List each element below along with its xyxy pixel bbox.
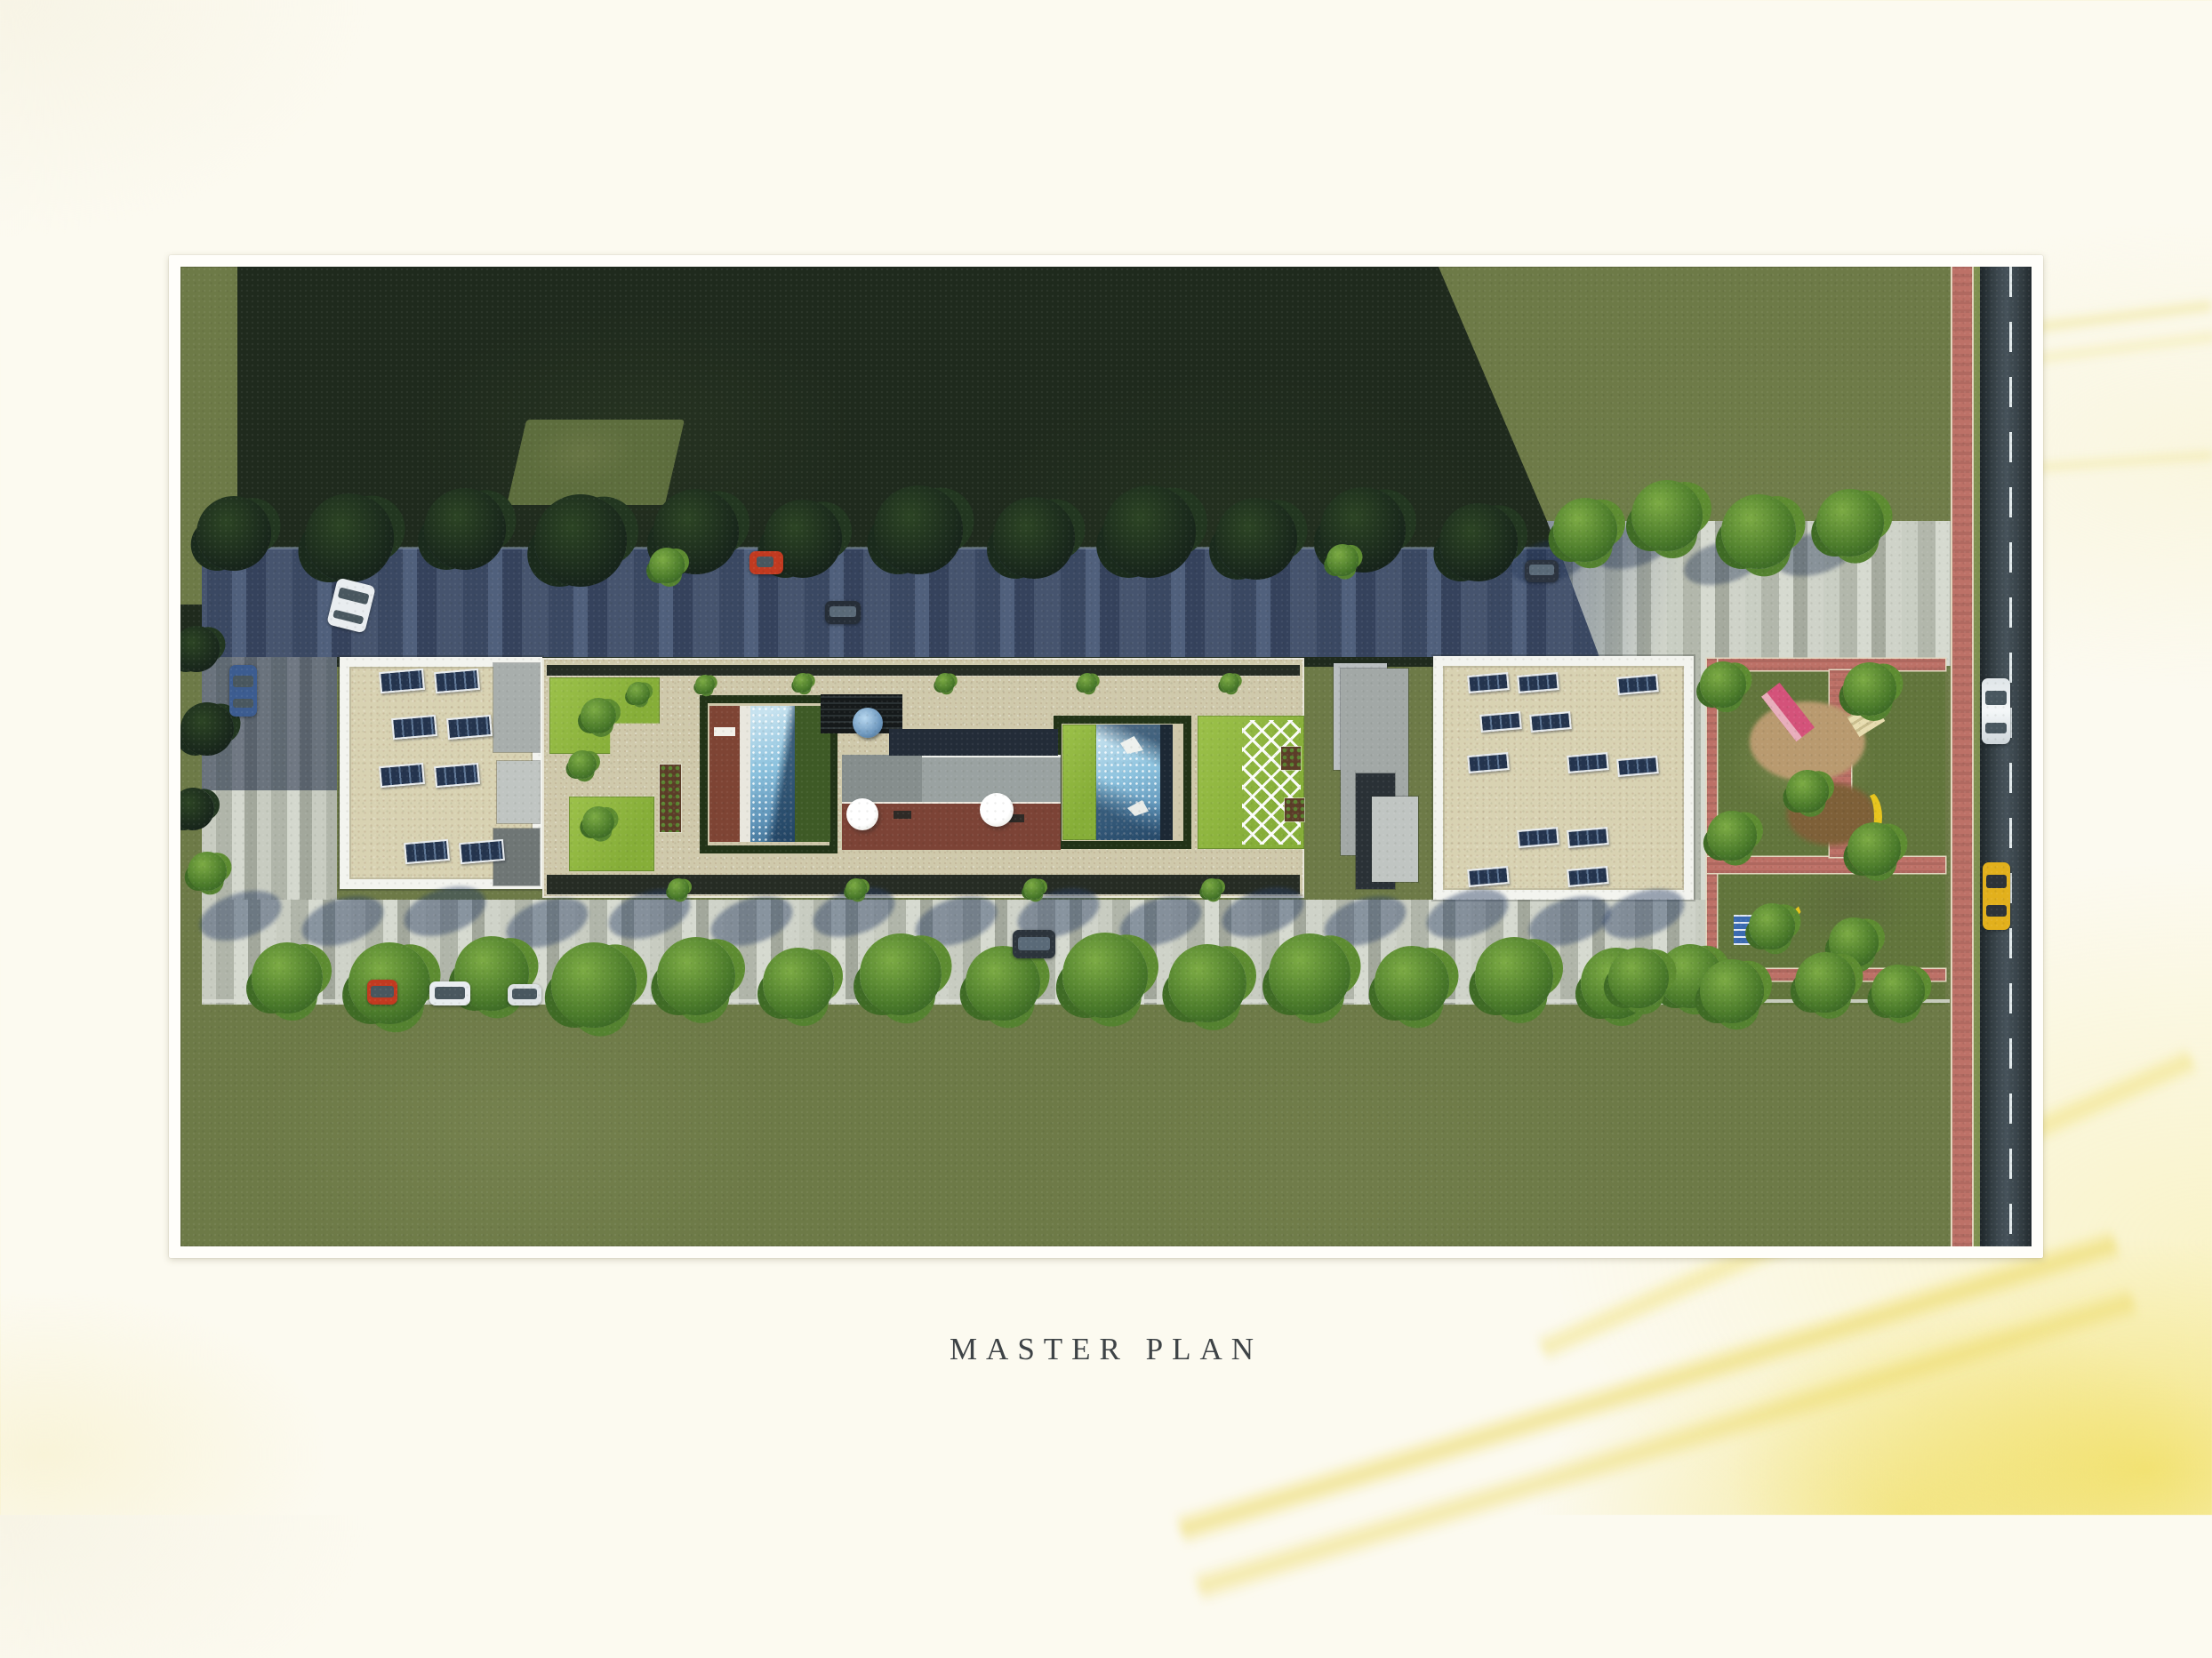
tree bbox=[1847, 822, 1901, 876]
site-plan-render bbox=[180, 267, 2032, 1246]
solar-panel-array bbox=[459, 839, 505, 864]
grass-verge bbox=[1974, 267, 1980, 1246]
service-core bbox=[493, 663, 540, 752]
tree bbox=[1749, 903, 1795, 949]
tree bbox=[763, 948, 834, 1019]
sunlit-grass-patch bbox=[507, 420, 685, 505]
tree bbox=[1631, 480, 1703, 551]
garden-lawn bbox=[569, 797, 654, 871]
tree bbox=[188, 852, 227, 891]
solar-panel-array bbox=[379, 763, 425, 788]
playground-path bbox=[1707, 659, 1945, 670]
white-car-parked-promenade bbox=[508, 984, 541, 1005]
tree bbox=[1816, 489, 1884, 557]
dark-car-parked-walkway bbox=[1013, 930, 1055, 958]
solar-panel-array bbox=[404, 839, 450, 864]
shrub bbox=[1220, 673, 1239, 693]
tree bbox=[1608, 948, 1669, 1008]
shrub bbox=[1023, 878, 1045, 900]
shrub bbox=[627, 682, 650, 705]
tree-shaded bbox=[180, 702, 234, 756]
tree bbox=[1168, 944, 1246, 1022]
solar-panel-array bbox=[1616, 756, 1659, 777]
central-courtyard bbox=[542, 658, 1304, 898]
playground-path bbox=[1707, 857, 1945, 873]
tree bbox=[1374, 946, 1449, 1021]
tree bbox=[1871, 965, 1925, 1018]
solar-panel-array bbox=[434, 669, 480, 693]
tree bbox=[1269, 933, 1350, 1015]
rooftop-furniture-zone bbox=[889, 729, 1058, 756]
solar-panel-array bbox=[1479, 711, 1522, 733]
tree bbox=[1707, 811, 1757, 861]
road-center-dashed-line bbox=[2009, 267, 2012, 1246]
yellow-taxi-on-road bbox=[1983, 862, 2010, 930]
solar-panel-array bbox=[1567, 752, 1609, 773]
south-glazing-strip bbox=[547, 875, 1300, 894]
service-core bbox=[497, 761, 540, 823]
tree bbox=[649, 548, 685, 583]
planter bbox=[1285, 798, 1304, 821]
tree bbox=[1326, 544, 1358, 576]
solar-panel-array bbox=[1529, 711, 1572, 733]
solar-panel-array bbox=[1467, 752, 1510, 773]
tree bbox=[1553, 498, 1617, 562]
solar-panel-array bbox=[1467, 672, 1510, 693]
blue-dome-pavilion bbox=[853, 708, 883, 738]
road bbox=[1980, 267, 2032, 1246]
tree bbox=[1721, 494, 1796, 569]
tree bbox=[1475, 937, 1553, 1015]
solar-panel-array bbox=[446, 715, 493, 740]
planter bbox=[660, 765, 681, 832]
master-plan-photo bbox=[169, 255, 2043, 1258]
pool-loungers-shaded bbox=[1160, 725, 1173, 840]
tree bbox=[1786, 770, 1829, 813]
tree-shaded bbox=[1215, 498, 1297, 580]
tree-shaded bbox=[534, 494, 627, 587]
white-car-on-road bbox=[1982, 678, 2010, 744]
solar-panel-array bbox=[1567, 827, 1609, 848]
shrub bbox=[581, 698, 616, 733]
solar-panel-array bbox=[379, 669, 425, 693]
tree-shaded bbox=[1439, 503, 1518, 581]
page: { "caption": { "text": "MASTER PLAN" }, … bbox=[0, 0, 2212, 1515]
shrub bbox=[695, 675, 715, 694]
shrub bbox=[1078, 673, 1097, 693]
shrub bbox=[793, 673, 813, 693]
pool-lawn bbox=[1062, 725, 1096, 840]
tree bbox=[252, 942, 323, 1013]
shrub bbox=[668, 878, 689, 900]
shrub bbox=[935, 673, 955, 693]
pool-lounger bbox=[714, 727, 735, 736]
tree-shaded bbox=[424, 488, 506, 570]
blue-car-parked-west bbox=[229, 665, 257, 717]
pool-dark-reflection bbox=[750, 706, 795, 842]
solar-panel-array bbox=[391, 715, 437, 740]
tree bbox=[1700, 661, 1746, 708]
tree-shaded bbox=[993, 497, 1075, 579]
white-umbrella bbox=[980, 793, 1014, 827]
central-roof-slab-dark bbox=[842, 755, 922, 804]
deck-edge bbox=[740, 706, 750, 842]
tree bbox=[1795, 952, 1855, 1013]
tree bbox=[551, 942, 637, 1028]
shrub bbox=[568, 750, 597, 779]
tree-shaded bbox=[196, 496, 271, 571]
paver-lattice bbox=[1242, 720, 1301, 845]
shrub bbox=[582, 806, 614, 838]
solar-panel-array bbox=[1616, 674, 1659, 695]
tree bbox=[1062, 933, 1148, 1018]
dark-car-parked-driveway bbox=[1525, 560, 1559, 582]
red-brick-footpath bbox=[1951, 267, 1974, 1246]
wood-deck bbox=[709, 706, 740, 842]
solar-panel-array bbox=[434, 763, 480, 788]
tree-shaded bbox=[874, 485, 963, 574]
shrub bbox=[1201, 878, 1222, 900]
white-umbrella bbox=[846, 798, 878, 830]
red-car-parked-driveway bbox=[749, 551, 783, 574]
tree bbox=[657, 937, 735, 1015]
solar-panel-array bbox=[1567, 866, 1609, 887]
service-core bbox=[1372, 797, 1418, 882]
shrub bbox=[846, 878, 867, 900]
white-car-parked-promenade bbox=[429, 981, 470, 1005]
dark-car-parked-driveway bbox=[825, 601, 861, 624]
solar-panel-array bbox=[1517, 827, 1559, 848]
red-car-parked-promenade bbox=[367, 980, 397, 1005]
tree bbox=[1700, 959, 1764, 1023]
caption: MASTER PLAN bbox=[0, 1332, 2212, 1367]
solar-panel-array bbox=[1517, 672, 1559, 693]
tree-shaded bbox=[305, 493, 394, 582]
tree-shaded bbox=[1103, 485, 1196, 578]
terrace-furniture bbox=[894, 811, 911, 819]
planter bbox=[1281, 747, 1301, 770]
tree bbox=[860, 933, 942, 1015]
north-glazing-strip bbox=[547, 665, 1300, 676]
solar-panel-array bbox=[1467, 866, 1510, 887]
tree bbox=[1843, 662, 1896, 716]
